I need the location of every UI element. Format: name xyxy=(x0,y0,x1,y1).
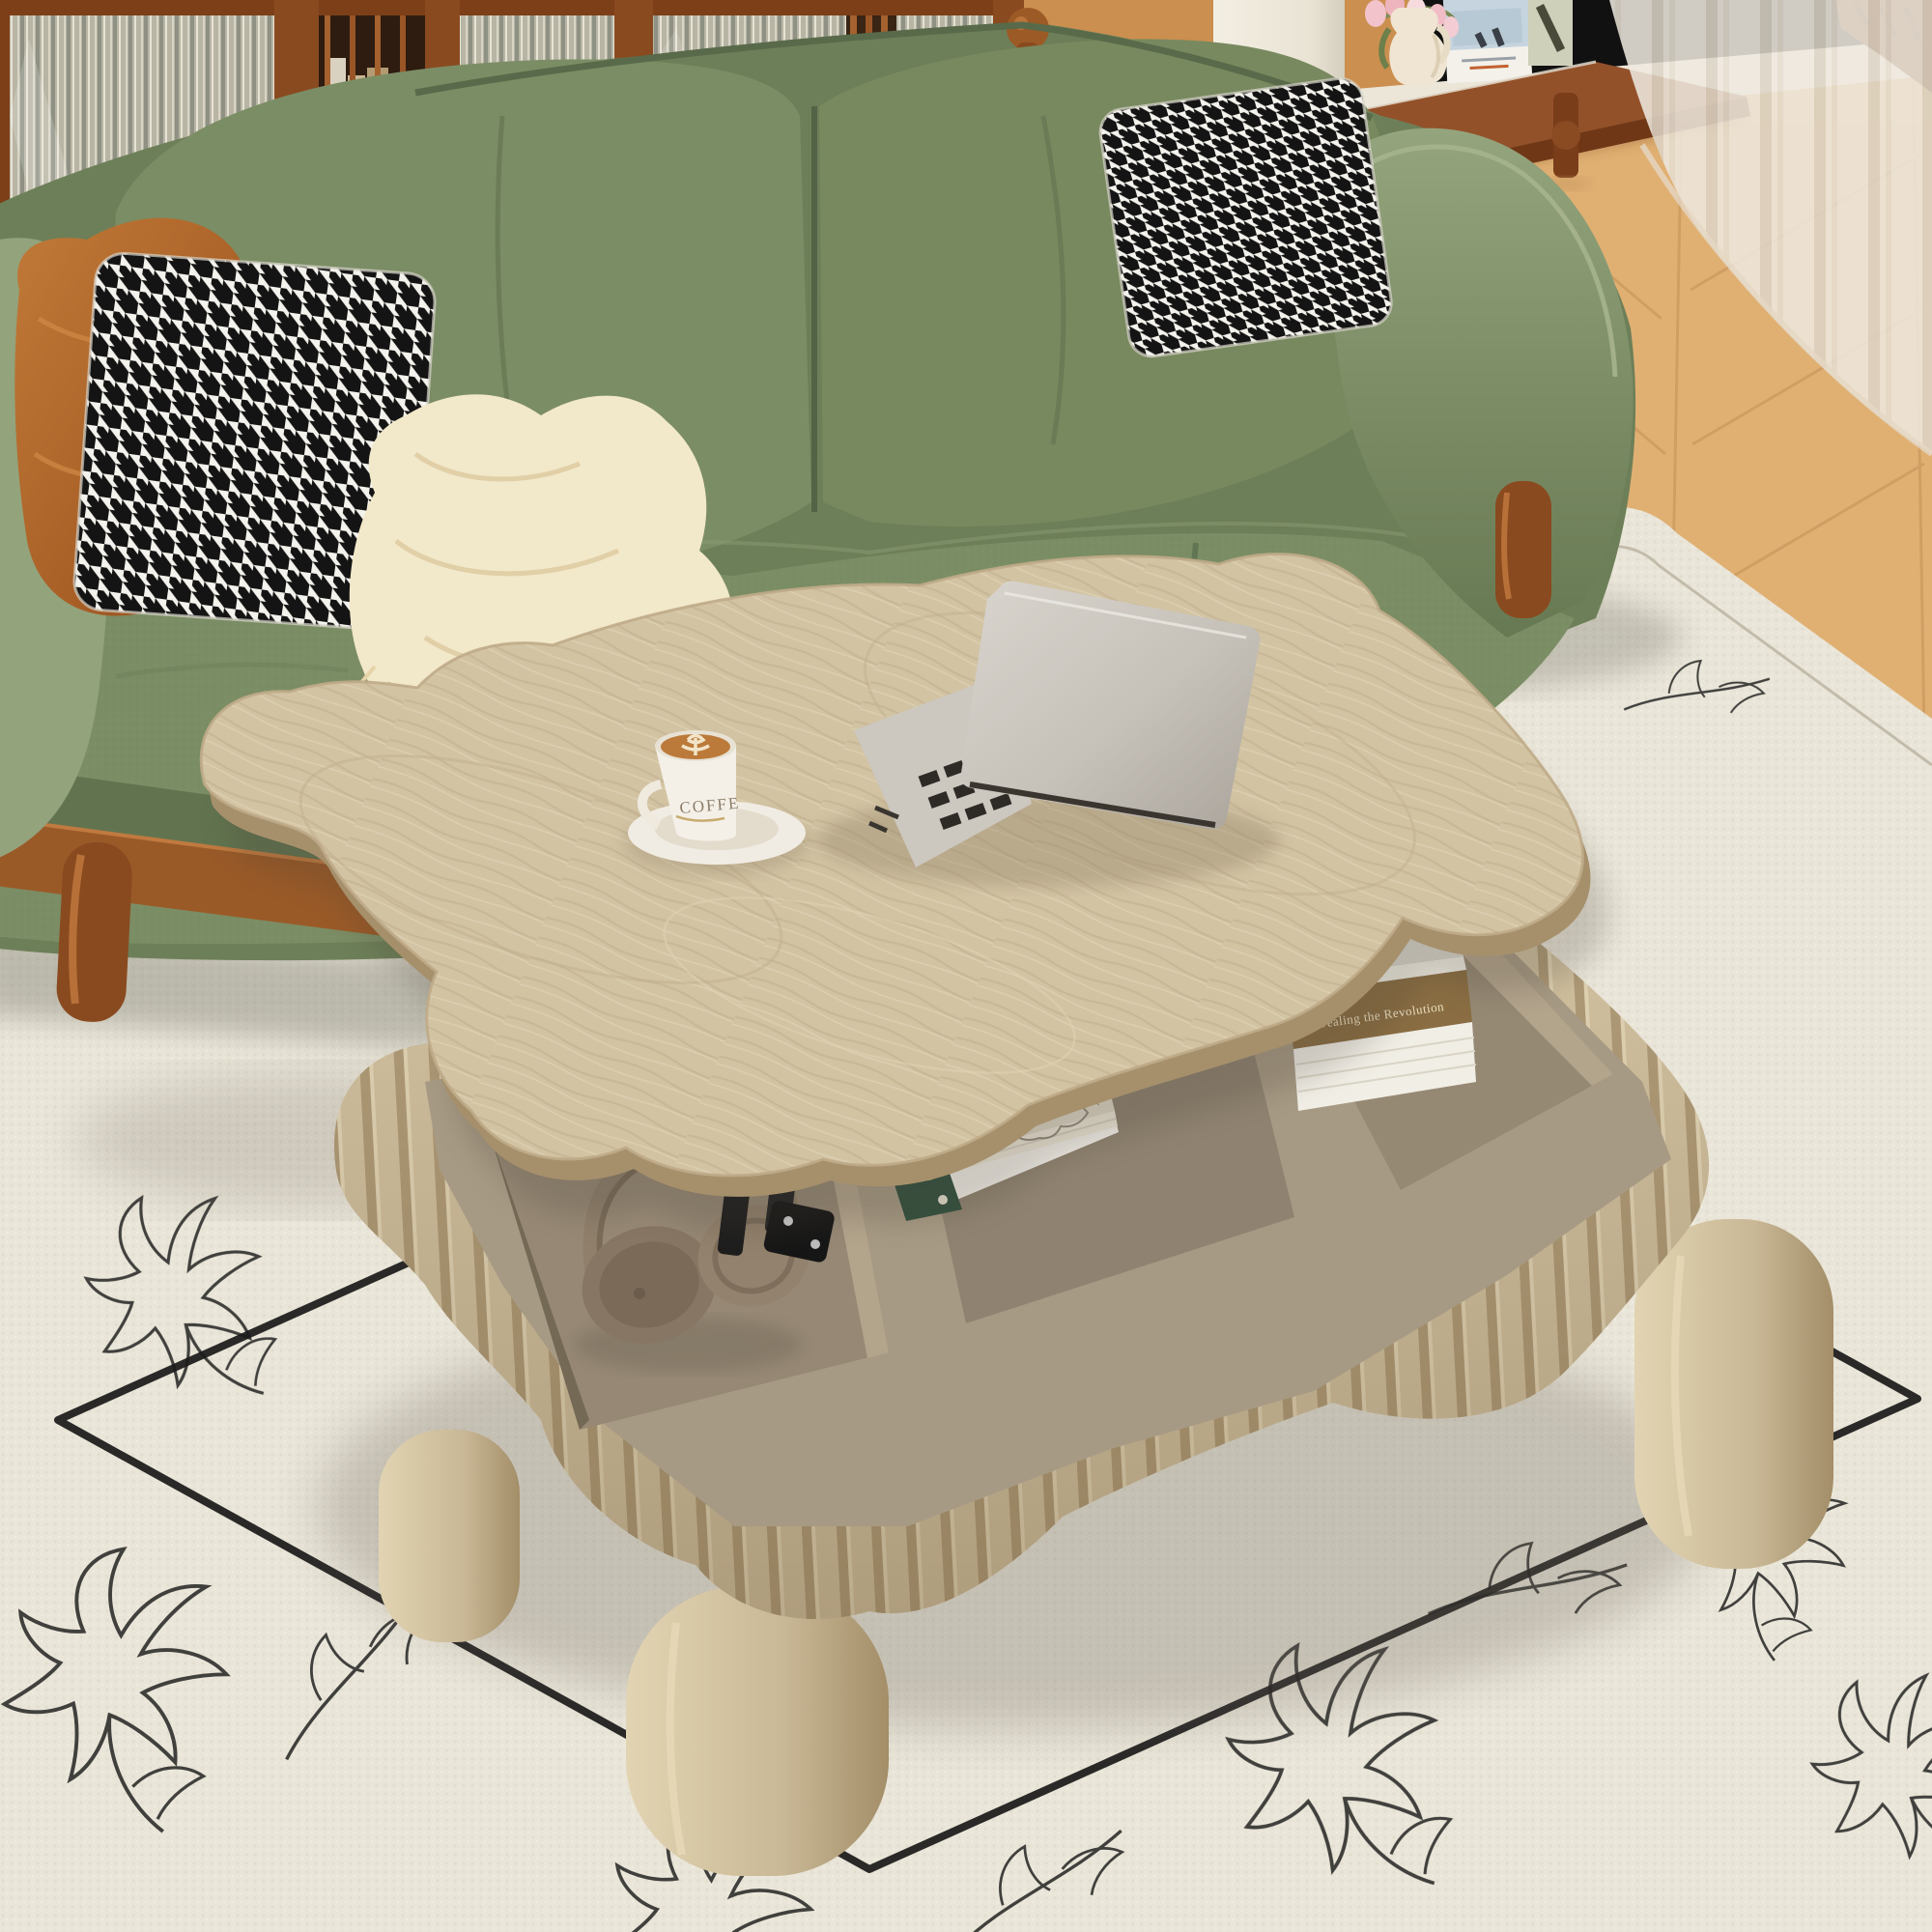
sofa-leg-right xyxy=(1495,481,1551,618)
sofa-leg-front-left xyxy=(55,840,134,1024)
table-leg-right xyxy=(1634,1219,1833,1569)
houndstooth-pillow-right xyxy=(1097,75,1394,359)
art-print-green xyxy=(1528,0,1573,66)
table-leg-front xyxy=(626,1586,889,1876)
living-room-scene: K William Blake Dante's Divine Comedy TA… xyxy=(0,0,1932,1932)
art-print-beach xyxy=(1443,0,1533,83)
tulip xyxy=(1365,0,1386,27)
table-leg-left xyxy=(379,1430,520,1642)
